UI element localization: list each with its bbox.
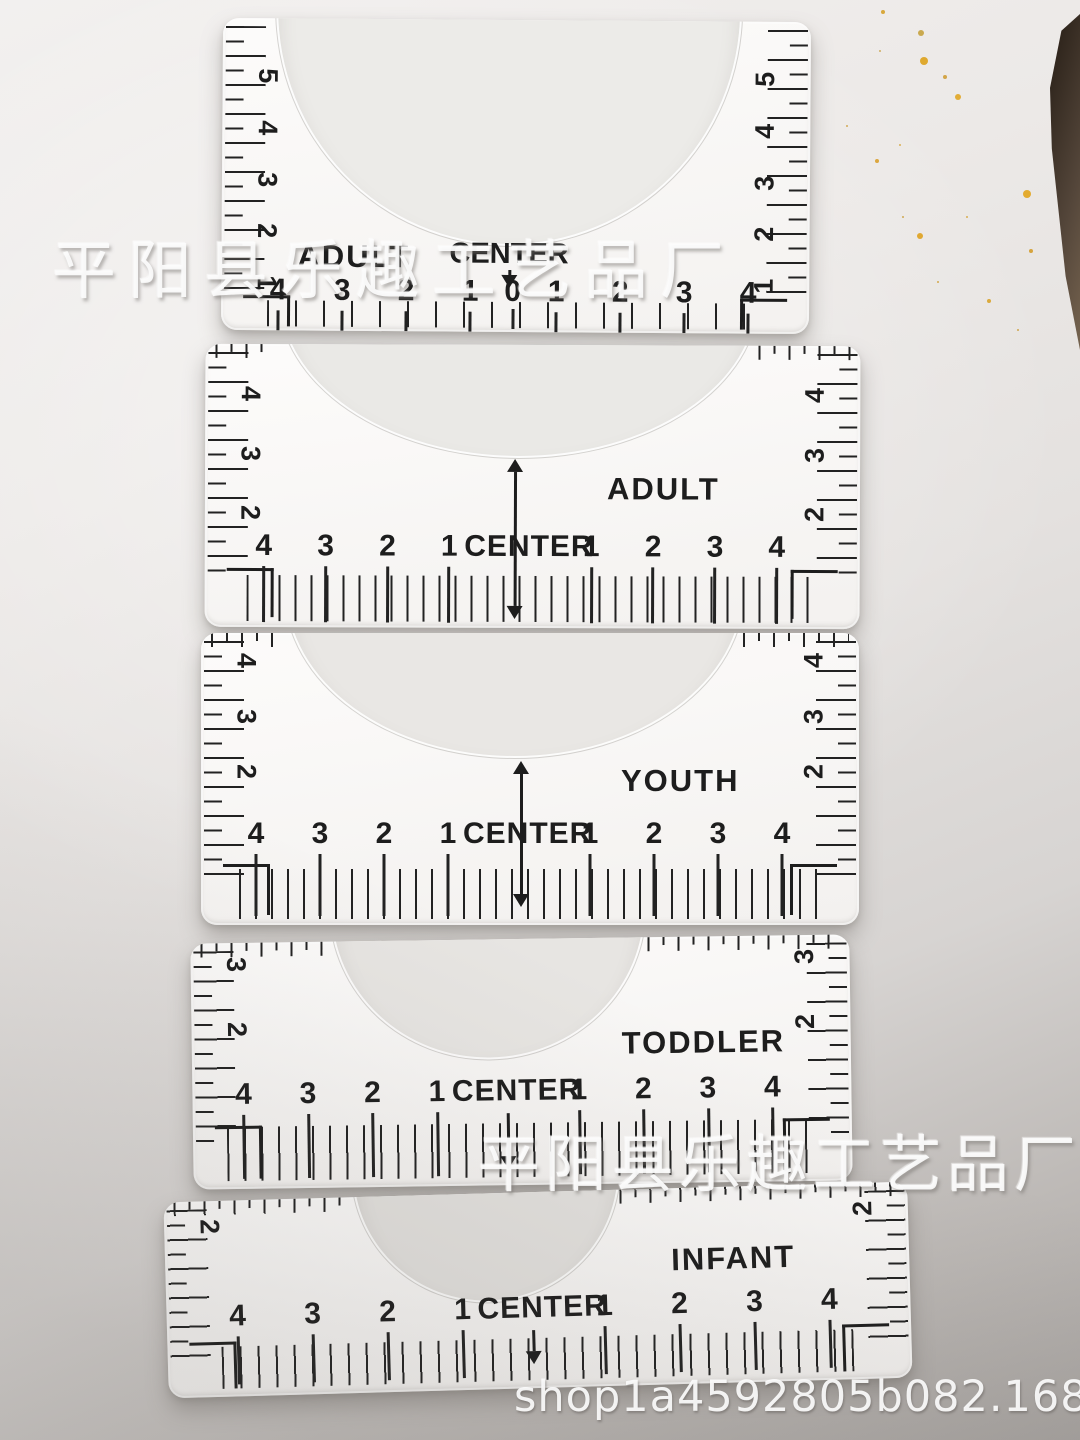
center-arrow (525, 1330, 542, 1364)
factory-watermark-top: 平阳县乐趣工艺品厂 (52, 220, 736, 312)
scale-number: 1 (433, 814, 463, 854)
scale-number: 2 (193, 1213, 225, 1240)
inch-scale: 4321 CENTER 1234 (201, 814, 859, 854)
right-scale: 54321 (751, 64, 779, 302)
ruler-infant: 2 2 INFANT 4321 CENTER 1234 (163, 1182, 912, 1399)
scale-number: 3 (800, 442, 831, 468)
center-label: CENTER (463, 817, 575, 851)
scale-number: 4 (222, 1296, 253, 1337)
scale-number: 4 (241, 814, 271, 854)
ruler-adult: 432 432 ADULT 4321 CENTER 1234 (205, 344, 861, 629)
left-scale: 432 (237, 378, 264, 528)
neckline-notch (328, 934, 648, 1061)
size-label: ADULT (607, 471, 720, 507)
scale-number: 3 (799, 703, 830, 729)
scale-number: 4 (249, 526, 279, 566)
scale-number: 4 (799, 648, 830, 674)
neckline-notch (285, 633, 744, 758)
scale-number: 2 (799, 759, 830, 785)
scale-number: 1 (589, 1286, 620, 1327)
scale-number: 1 (447, 1290, 478, 1331)
corner-mark (791, 570, 838, 619)
scale-number: 2 (628, 1069, 659, 1109)
scale-number: 4 (228, 1075, 259, 1115)
scale-number: 3 (693, 1068, 724, 1108)
bottom-edge-ticks (239, 869, 821, 919)
scale-number: 1 (576, 527, 606, 567)
inch-scale: 4321 CENTER 1234 (192, 1066, 851, 1115)
size-label: INFANT (671, 1239, 796, 1278)
photo-tshirt-ruler-set: 54321 54321 ADULT CENTER 4321 0 1234 432… (0, 0, 1080, 1440)
corner-mark (223, 864, 270, 915)
center-label: CENTER (464, 530, 576, 564)
scale-number: 2 (234, 499, 265, 525)
center-label: CENTER (477, 1290, 590, 1327)
scale-number: 2 (664, 1284, 695, 1325)
ruler-youth: 432 432 YOUTH 4321 CENTER 1234 (201, 633, 859, 925)
scale-number: 2 (638, 527, 668, 567)
scale-number: 2 (369, 814, 399, 854)
right-scale: 432 (801, 645, 827, 787)
scale-number: 3 (251, 166, 282, 192)
scale-number: 3 (235, 440, 266, 466)
left-scale: 32 (222, 949, 249, 1045)
scale-number: 2 (221, 1016, 252, 1042)
inch-scale: 4321 CENTER 1234 (205, 526, 860, 568)
scale-number: 3 (220, 951, 251, 977)
right-scale: 432 (802, 380, 829, 530)
right-scale: 32 (791, 941, 818, 1037)
size-label: YOUTH (621, 763, 740, 799)
scale-number: 4 (814, 1279, 845, 1320)
scale-number: 2 (799, 501, 830, 527)
scale-number: 1 (564, 1070, 595, 1110)
scale-number: 4 (235, 380, 266, 406)
scale-number: 1 (422, 1072, 453, 1112)
corner-mark (790, 864, 837, 915)
scale-number: 2 (357, 1073, 388, 1113)
center-label: CENTER (452, 1073, 564, 1109)
scale-number: 3 (700, 528, 730, 568)
corner-mark (227, 568, 274, 617)
scale-number: 4 (750, 118, 781, 144)
neckline-notch (278, 344, 759, 459)
scale-number: 3 (703, 814, 733, 854)
scale-number: 1 (575, 814, 605, 854)
scale-number: 3 (311, 526, 341, 566)
size-label: TODDLER (622, 1023, 786, 1061)
scale-number: 4 (252, 114, 283, 140)
scale-number: 3 (231, 703, 262, 729)
scale-number: 4 (757, 1067, 788, 1107)
scale-number: 5 (252, 63, 283, 89)
scale-number: 4 (762, 528, 792, 568)
scale-number: 2 (372, 1292, 403, 1333)
scale-number: 4 (800, 382, 831, 408)
shop-url-watermark: shop1a4592805b082.1688.com (514, 1372, 1080, 1422)
scale-number: 2 (372, 526, 402, 566)
scale-number: 1 (434, 527, 464, 567)
scale-number: 4 (767, 814, 797, 854)
scale-number: 3 (749, 170, 780, 196)
left-scale: 432 (233, 645, 259, 787)
dark-corner-object (1050, 14, 1080, 350)
scale-number: 4 (231, 648, 262, 674)
scale-number: 3 (297, 1294, 328, 1335)
corner-mark (842, 1323, 890, 1371)
corner-mark (215, 1126, 263, 1180)
scale-number: 2 (749, 221, 780, 247)
neckline-notch (275, 18, 744, 248)
scale-number: 2 (790, 1008, 821, 1034)
scale-number: 5 (750, 66, 781, 92)
factory-watermark-middle: 平阳县乐趣工艺品厂 (478, 1114, 1080, 1204)
scale-number: 3 (789, 943, 820, 969)
scale-number: 3 (305, 814, 335, 854)
scale-number: 2 (231, 759, 262, 785)
left-scale: 2 (196, 1211, 223, 1252)
corner-mark (189, 1341, 237, 1389)
scale-number: 3 (739, 1282, 770, 1323)
scale-number: 3 (293, 1074, 324, 1114)
bottom-edge-ticks (247, 575, 818, 623)
scale-number: 4 (733, 274, 763, 314)
scale-number: 2 (639, 814, 669, 854)
